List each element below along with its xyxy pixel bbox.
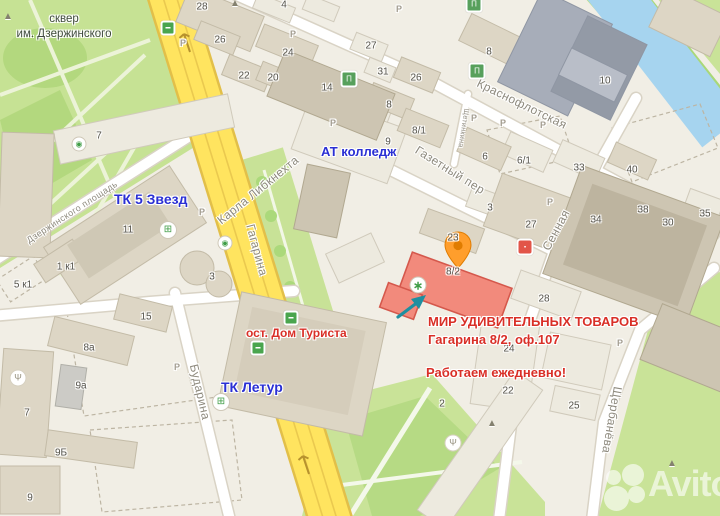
avito-watermark-text: Avito (648, 463, 720, 505)
avito-logo-circle (622, 464, 644, 486)
map-base-layer (0, 0, 720, 516)
avito-watermark: Avito (592, 462, 720, 516)
park-name-line1: сквер (49, 13, 79, 25)
avito-logo-circle (628, 486, 645, 503)
park-name-line2: им. Дзержинского (17, 28, 112, 40)
map-screenshot[interactable]: Карла ЛибкнехтаГагаринаГазетный перКрасн… (0, 0, 720, 516)
avito-logo-circle (604, 486, 629, 511)
park-name-label: сквер им. Дзержинского (6, 12, 122, 42)
avito-logo-circle (606, 470, 621, 485)
